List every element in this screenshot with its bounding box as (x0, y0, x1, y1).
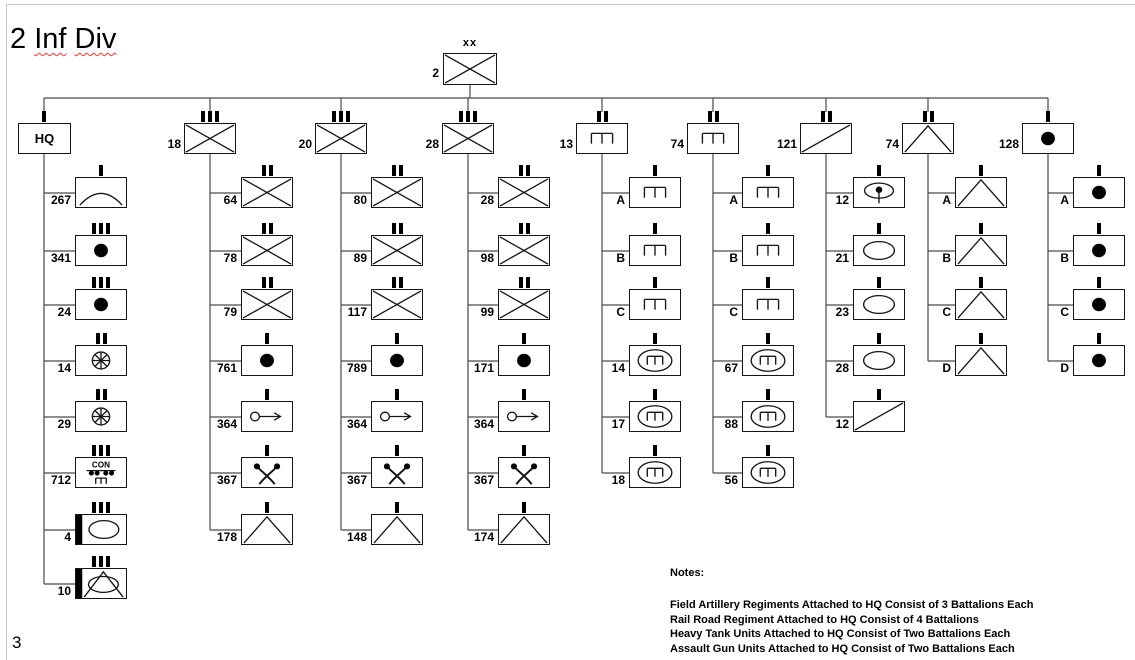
echelon-bar (392, 223, 396, 234)
child-unit-box (629, 289, 681, 320)
echelon-bar (215, 111, 219, 122)
engineer-symbol-icon (630, 178, 680, 207)
echelon-bar (265, 445, 269, 456)
child-unit-box (742, 177, 794, 208)
echelon-bar (208, 111, 212, 122)
child-echelon-I (766, 389, 770, 400)
child-echelon-I (653, 165, 657, 176)
child-echelon-I (877, 223, 881, 234)
child-echelon-II (392, 223, 403, 234)
echelon-bar (399, 277, 403, 288)
echelon-bar (106, 223, 110, 234)
child-echelon-II (392, 277, 403, 288)
child-echelon-I (522, 333, 526, 344)
child-echelon-II (262, 223, 273, 234)
child-echelon-I (395, 389, 399, 400)
recon-symbol-icon (242, 402, 292, 431)
child-echelon-II (262, 165, 273, 176)
unit-designation: C (579, 306, 625, 319)
child-unit-box (1073, 177, 1125, 208)
child-echelon-I (877, 389, 881, 400)
echelon-bar (1097, 333, 1101, 344)
child-echelon-II (96, 333, 107, 344)
child-unit-box (75, 289, 127, 320)
armored-engineer-symbol-icon (630, 458, 680, 487)
child-unit-box (498, 289, 550, 320)
unit-designation: 178 (191, 531, 237, 544)
child-echelon-I (766, 445, 770, 456)
echelon-bar (979, 223, 983, 234)
unit-designation: D (1023, 362, 1069, 375)
head-designation: 121 (751, 138, 797, 151)
head-unit-box: HQ (18, 123, 71, 154)
engineer-symbol-icon (743, 178, 793, 207)
title-part: 2 (10, 23, 34, 55)
echelon-bar (96, 389, 100, 400)
head-designation: 74 (853, 138, 899, 151)
child-unit-box (853, 235, 905, 266)
railroad-construction-symbol-icon: CON (76, 458, 126, 487)
echelon-bar (92, 556, 96, 567)
echelon-bar (519, 277, 523, 288)
child-unit-box (371, 457, 423, 488)
unit-designation: B (1023, 252, 1069, 265)
tank-symbol-icon (854, 290, 904, 319)
child-unit-box (241, 345, 293, 376)
cavalry-symbol-icon (854, 402, 904, 431)
echelon-bar (715, 111, 719, 122)
infantry-symbol-icon (444, 54, 496, 84)
armored-engineer-symbol-icon (743, 458, 793, 487)
artillery-symbol-icon (372, 346, 422, 375)
child-echelon-I (522, 502, 526, 513)
child-unit-box (629, 345, 681, 376)
infantry-symbol-icon (372, 290, 422, 319)
echelon-bar (979, 277, 983, 288)
child-unit-box (1073, 235, 1125, 266)
echelon-bar (392, 165, 396, 176)
child-unit-box (1073, 345, 1125, 376)
con-label: CON (92, 460, 110, 469)
infantry-symbol-icon (372, 236, 422, 265)
child-unit-box (75, 401, 127, 432)
unit-designation: 367 (191, 474, 237, 487)
echelon-bar (877, 389, 881, 400)
head-designation: 74 (638, 138, 684, 151)
child-echelon-I (1097, 223, 1101, 234)
unit-designation: 24 (25, 306, 71, 319)
engineer-symbol-icon (743, 290, 793, 319)
infantry-symbol-icon (499, 236, 549, 265)
child-echelon-I (653, 223, 657, 234)
assault-gun-symbol-icon (76, 569, 126, 598)
engineer-symbol-icon (630, 290, 680, 319)
child-unit-box (1073, 289, 1125, 320)
unit-designation: A (579, 194, 625, 207)
infantry-symbol-icon (499, 178, 549, 207)
head-designation: 28 (393, 138, 439, 151)
engineer-symbol-icon (630, 236, 680, 265)
unit-designation: 56 (692, 474, 738, 487)
unit-designation: 99 (448, 306, 494, 319)
infantry-symbol-icon (499, 290, 549, 319)
transport-symbol-icon (76, 402, 126, 431)
echelon-bar (265, 389, 269, 400)
child-unit-box (955, 345, 1007, 376)
unit-designation: C (1023, 306, 1069, 319)
child-echelon-I (265, 445, 269, 456)
artillery-symbol-icon (242, 346, 292, 375)
head-echelon-I (1046, 111, 1050, 122)
echelon-bar (522, 389, 526, 400)
echelon-bar (766, 333, 770, 344)
echelon-bar (99, 445, 103, 456)
child-unit-box (629, 401, 681, 432)
echelon-bar (653, 223, 657, 234)
child-unit-box (241, 401, 293, 432)
child-unit-box (629, 177, 681, 208)
unit-designation: C (905, 306, 951, 319)
notes-line: Field Artillery Regiments Attached to HQ… (670, 598, 1033, 613)
echelon-bar (99, 502, 103, 513)
echelon-bar (269, 223, 273, 234)
echelon-bar (399, 223, 403, 234)
child-echelon-I (877, 333, 881, 344)
child-echelon-I (99, 165, 103, 176)
echelon-bar (1097, 223, 1101, 234)
child-echelon-III (92, 502, 110, 513)
echelon-bar (106, 502, 110, 513)
unit-designation: 23 (803, 306, 849, 319)
echelon-bar (473, 111, 477, 122)
unit-designation: 14 (25, 362, 71, 375)
artillery-symbol-icon (499, 346, 549, 375)
child-unit-box (241, 289, 293, 320)
child-echelon-II (392, 165, 403, 176)
armored-engineer-symbol-icon (630, 346, 680, 375)
unit-designation: 364 (448, 418, 494, 431)
echelon-bar (42, 111, 46, 122)
echelon-bar (103, 333, 107, 344)
artillery-symbol-icon (76, 290, 126, 319)
child-echelon-III (92, 445, 110, 456)
echelon-bar (269, 277, 273, 288)
notes-line: Heavy Tank Units Attached to HQ Consist … (670, 627, 1033, 642)
unit-designation: B (692, 252, 738, 265)
artillery-symbol-icon (1074, 236, 1124, 265)
child-echelon-I (979, 165, 983, 176)
unit-designation: A (692, 194, 738, 207)
child-echelon-II (96, 389, 107, 400)
head-echelon-II (821, 111, 832, 122)
unit-designation: 789 (321, 362, 367, 375)
echelon-bar (106, 445, 110, 456)
unit-designation: 14 (579, 362, 625, 375)
child-echelon-I (1097, 277, 1101, 288)
unit-designation: 80 (321, 194, 367, 207)
echelon-bar (99, 277, 103, 288)
echelon-bar (766, 277, 770, 288)
echelon-bar (392, 277, 396, 288)
unit-designation: 79 (191, 306, 237, 319)
echelon-bar (262, 277, 266, 288)
title-part (66, 23, 74, 55)
head-unit-box (902, 123, 954, 154)
anti-tank-symbol-icon (372, 458, 422, 487)
echelon-bar (522, 445, 526, 456)
child-echelon-II (519, 165, 530, 176)
unit-designation: B (579, 252, 625, 265)
page-number: 3 (12, 633, 21, 653)
head-echelon-II (708, 111, 719, 122)
echelon-bar (877, 277, 881, 288)
artillery-symbol-icon (76, 236, 126, 265)
head-unit-box (800, 123, 852, 154)
child-echelon-I (1097, 333, 1101, 344)
anti-tank-symbol-icon (242, 458, 292, 487)
echelon-bar (653, 165, 657, 176)
head-designation: 20 (266, 138, 312, 151)
echelon-bar (395, 445, 399, 456)
head-designation: 13 (527, 138, 573, 151)
head-unit-box (687, 123, 739, 154)
head-echelon-I (42, 111, 46, 122)
connector-lines-layer (0, 0, 1135, 660)
head-echelon-II (923, 111, 934, 122)
artillery-symbol-icon (1074, 178, 1124, 207)
child-unit-box (955, 177, 1007, 208)
child-unit-box (371, 235, 423, 266)
echelon-bar (395, 333, 399, 344)
unit-designation: 28 (803, 362, 849, 375)
child-echelon-I (653, 277, 657, 288)
unit-designation: 267 (25, 194, 71, 207)
head-designation: 18 (135, 138, 181, 151)
child-echelon-I (653, 445, 657, 456)
child-unit-box (75, 345, 127, 376)
echelon-bar (877, 165, 881, 176)
echelon-bar (265, 502, 269, 513)
recon-symbol-icon (499, 402, 549, 431)
unit-designation: 10 (25, 585, 71, 598)
anti-tank-symbol-icon (499, 458, 549, 487)
child-unit-box (371, 401, 423, 432)
unit-designation: 64 (191, 194, 237, 207)
unit-designation: 17 (579, 418, 625, 431)
echelon-bar (99, 556, 103, 567)
echelon-bar (106, 277, 110, 288)
child-unit-box (498, 401, 550, 432)
unit-designation: 367 (448, 474, 494, 487)
echelon-bar (399, 165, 403, 176)
unit-designation: 88 (692, 418, 738, 431)
title-part: Div (75, 23, 117, 55)
echelon-bar (99, 165, 103, 176)
child-unit-box (241, 177, 293, 208)
echelon-bar (604, 111, 608, 122)
child-unit-box (498, 177, 550, 208)
cavalry-symbol-icon (801, 124, 851, 153)
unit-designation: 712 (25, 474, 71, 487)
echelon-bar (653, 389, 657, 400)
echelon-bar (262, 223, 266, 234)
unit-designation: 364 (191, 418, 237, 431)
armor-symbol-icon (956, 236, 1006, 265)
echelon-bar (99, 223, 103, 234)
head-unit-box (1022, 123, 1074, 154)
unit-designation: 12 (803, 194, 849, 207)
unit-designation: 174 (448, 531, 494, 544)
unit-designation: D (905, 362, 951, 375)
child-echelon-I (653, 389, 657, 400)
echelon-bar (923, 111, 927, 122)
child-echelon-I (653, 333, 657, 344)
child-unit-box (75, 177, 127, 208)
child-unit-box (371, 514, 423, 545)
echelon-bar (395, 389, 399, 400)
unit-designation: 341 (25, 252, 71, 265)
echelon-bar (269, 165, 273, 176)
child-echelon-I (1097, 165, 1101, 176)
unit-designation: 4 (25, 531, 71, 544)
echelon-bar (526, 165, 530, 176)
child-echelon-I (265, 389, 269, 400)
notes-line: Assault Gun Units Attached to HQ Consist… (670, 642, 1033, 657)
unit-designation: A (1023, 194, 1069, 207)
echelon-bar (265, 333, 269, 344)
notes-line: Rail Road Regiment Attached to HQ Consis… (670, 613, 1033, 628)
child-echelon-I (522, 389, 526, 400)
child-unit-box (853, 401, 905, 432)
tank-symbol-icon (854, 346, 904, 375)
child-unit-box (742, 289, 794, 320)
unit-designation: 367 (321, 474, 367, 487)
armor-symbol-icon (903, 124, 953, 153)
child-unit-box (742, 235, 794, 266)
unit-designation: 29 (25, 418, 71, 431)
unit-designation: B (905, 252, 951, 265)
head-unit-box (442, 123, 494, 154)
infantry-symbol-icon (372, 178, 422, 207)
child-echelon-III (92, 556, 110, 567)
armor-symbol-icon (956, 178, 1006, 207)
unit-designation: 21 (803, 252, 849, 265)
echelon-bar (103, 389, 107, 400)
child-echelon-I (766, 223, 770, 234)
echelon-bar (653, 333, 657, 344)
child-unit-box (853, 289, 905, 320)
division-unit-box (443, 53, 497, 85)
armored-engineer-symbol-icon (630, 402, 680, 431)
echelon-bar (766, 445, 770, 456)
child-echelon-II (519, 223, 530, 234)
child-echelon-I (877, 277, 881, 288)
echelon-bar (1046, 111, 1050, 122)
unit-designation: 364 (321, 418, 367, 431)
echelon-bar (92, 223, 96, 234)
child-echelon-III (92, 277, 110, 288)
child-unit-box (371, 289, 423, 320)
child-unit-box (498, 345, 550, 376)
child-echelon-I (265, 502, 269, 513)
echelon-bar (653, 277, 657, 288)
child-unit-box (498, 235, 550, 266)
head-echelon-III (459, 111, 477, 122)
child-echelon-II (262, 277, 273, 288)
child-unit-box (371, 345, 423, 376)
echelon-bar (708, 111, 712, 122)
child-unit-box (75, 568, 127, 599)
armor-symbol-icon (242, 515, 292, 544)
echelon-bar (459, 111, 463, 122)
unit-designation: 89 (321, 252, 367, 265)
unit-designation: 67 (692, 362, 738, 375)
child-echelon-I (766, 333, 770, 344)
echelon-bar (1097, 165, 1101, 176)
child-unit-box (498, 514, 550, 545)
armor-symbol-icon (956, 290, 1006, 319)
child-unit-box (241, 457, 293, 488)
echelon-bar (1097, 277, 1101, 288)
child-echelon-I (395, 502, 399, 513)
child-unit-box (629, 235, 681, 266)
head-echelon-III (201, 111, 219, 122)
unit-designation: 761 (191, 362, 237, 375)
engineer-symbol-icon (688, 124, 738, 153)
recon-symbol-icon (372, 402, 422, 431)
child-unit-box (241, 235, 293, 266)
echelon-bar (395, 502, 399, 513)
page-title: 2 Inf Div (10, 24, 116, 54)
echelon-bar (979, 165, 983, 176)
infantry-symbol-icon (242, 290, 292, 319)
child-echelon-I (766, 165, 770, 176)
child-echelon-I (877, 165, 881, 176)
echelon-bar (821, 111, 825, 122)
child-echelon-III (92, 223, 110, 234)
echelon-bar (526, 277, 530, 288)
artillery-symbol-icon (1074, 290, 1124, 319)
unit-designation: 78 (191, 252, 237, 265)
child-unit-box (742, 345, 794, 376)
head-unit-box (184, 123, 236, 154)
child-echelon-I (395, 445, 399, 456)
echelon-bar (766, 223, 770, 234)
echelon-bar (92, 277, 96, 288)
notes-heading: Notes: (670, 567, 1033, 579)
artillery-symbol-icon (1023, 124, 1073, 153)
echelon-bar (519, 165, 523, 176)
unit-designation: A (905, 194, 951, 207)
echelon-bar (519, 223, 523, 234)
echelon-bar (92, 502, 96, 513)
head-unit-box (315, 123, 367, 154)
echelon-bar (766, 165, 770, 176)
artillery-symbol-icon (1074, 346, 1124, 375)
child-unit-box (742, 457, 794, 488)
division-echelon-xx: xx (455, 37, 485, 49)
child-unit-box (742, 401, 794, 432)
tank-symbol-icon (854, 236, 904, 265)
echelon-bar (201, 111, 205, 122)
child-echelon-I (979, 277, 983, 288)
notes-block: Notes: Field Artillery Regiments Attache… (670, 567, 1033, 657)
child-echelon-I (979, 333, 983, 344)
echelon-bar (930, 111, 934, 122)
unit-designation: 28 (448, 194, 494, 207)
sp-gun-symbol-icon (854, 178, 904, 207)
echelon-bar (262, 165, 266, 176)
